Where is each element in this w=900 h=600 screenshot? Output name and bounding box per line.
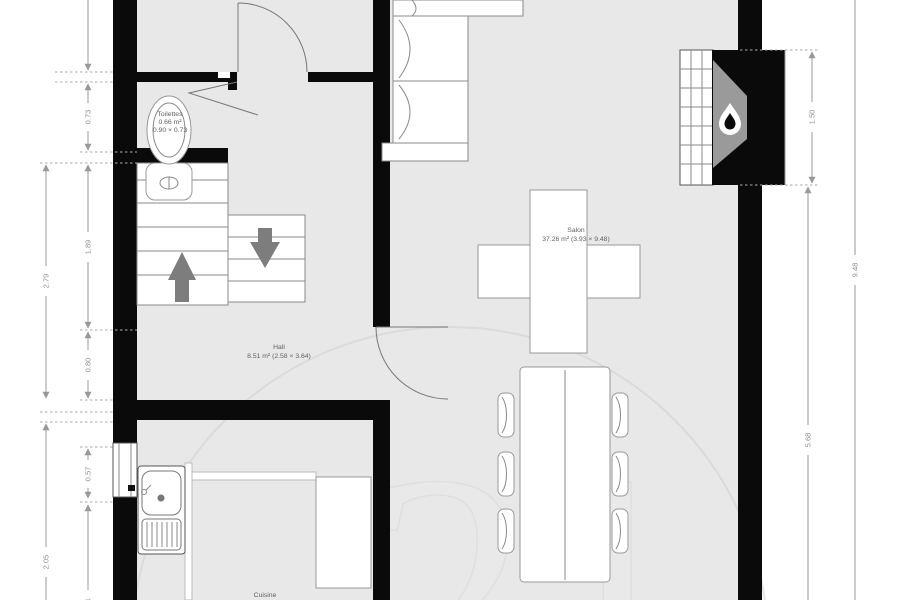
door-jamb-notch <box>218 72 230 78</box>
wall-left-upper <box>113 0 137 443</box>
dim-window-width: 0.57 <box>84 467 93 482</box>
chair <box>498 452 514 496</box>
wall-hall-kitchen <box>113 400 373 420</box>
drain-icon <box>158 495 165 502</box>
chair <box>498 509 514 553</box>
chair <box>612 452 628 496</box>
sofa-armrest <box>382 143 468 161</box>
toilettes-size: 0.90 × 0.73 <box>153 127 187 134</box>
wall-center-lower <box>373 400 390 600</box>
dim-toilettes-height: 0.73 <box>84 110 93 125</box>
toilettes-name: Toilettes <box>158 111 184 118</box>
wall-right <box>738 185 762 600</box>
salon-details: 37.26 m² (3.93 × 9.48) <box>542 236 609 243</box>
toilettes-area: 0.66 m² <box>158 119 182 126</box>
window-latch <box>128 485 135 491</box>
chair <box>612 509 628 553</box>
chair <box>498 393 514 437</box>
cuisine-name: Cuisine <box>254 592 277 599</box>
dim-salon-lower-span: 5.68 <box>804 433 813 448</box>
floor-plan-canvas: 21 <box>0 0 900 600</box>
wall-right-stub <box>738 0 762 50</box>
wall-center-upper <box>373 0 390 327</box>
floor-plan-page: 21 <box>0 0 900 600</box>
fireplace <box>680 50 785 185</box>
dim-hall-opening: 0.80 <box>84 358 93 373</box>
window <box>113 443 137 497</box>
salon-name: Salon <box>567 227 585 234</box>
kitchen-sink <box>138 466 185 554</box>
hall-name: Hall <box>273 344 285 351</box>
chair <box>612 393 628 437</box>
dim-fireplace-span: 1.50 <box>808 110 817 125</box>
dim-left-total-lower: 2.05 <box>42 555 51 570</box>
wall-left-lower <box>113 497 137 600</box>
dim-salon-total-height: 9.48 <box>851 263 860 278</box>
fireplace-tile-grid <box>680 50 713 185</box>
staircase-down <box>228 215 305 302</box>
dim-stair-span: 1.89 <box>84 240 93 255</box>
hall-details: 8.51 m² (2.58 × 3.64) <box>247 353 311 360</box>
dim-left-total-upper: 2.79 <box>42 274 51 289</box>
